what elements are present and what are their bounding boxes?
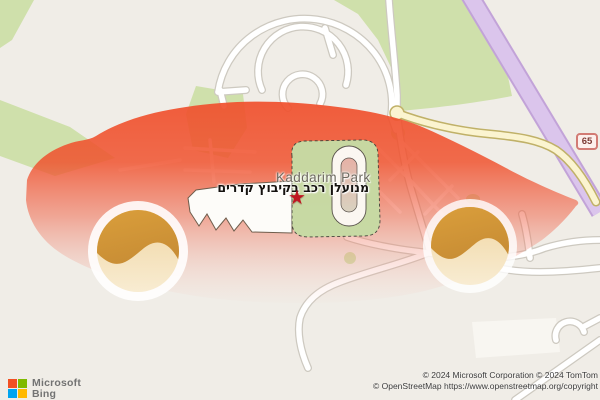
map-pin-star-icon[interactable]: ★ bbox=[288, 185, 306, 209]
bing-branding[interactable]: Microsoft Bing bbox=[8, 378, 81, 399]
building-footprint bbox=[472, 318, 560, 358]
bing-map-canvas[interactable]: Kaddarim Park מנועלן רכב בקיבוץ קדרים ★ … bbox=[0, 0, 600, 400]
logo-square-blue bbox=[8, 389, 17, 398]
logo-square-green bbox=[18, 379, 27, 388]
microsoft-logo-icon bbox=[8, 379, 26, 397]
attribution-line-2[interactable]: © OpenStreetMap https://www.openstreetma… bbox=[373, 381, 598, 392]
logo-square-yellow bbox=[18, 389, 27, 398]
route-65-shield: 65 bbox=[576, 133, 598, 150]
attribution-line-1: © 2024 Microsoft Corporation © 2024 TomT… bbox=[373, 370, 598, 381]
map-attribution: © 2024 Microsoft Corporation © 2024 TomT… bbox=[373, 370, 598, 392]
brand-bing-text: Bing bbox=[32, 389, 81, 400]
logo-square-red bbox=[8, 379, 17, 388]
brand-microsoft-text: Microsoft bbox=[32, 378, 81, 389]
